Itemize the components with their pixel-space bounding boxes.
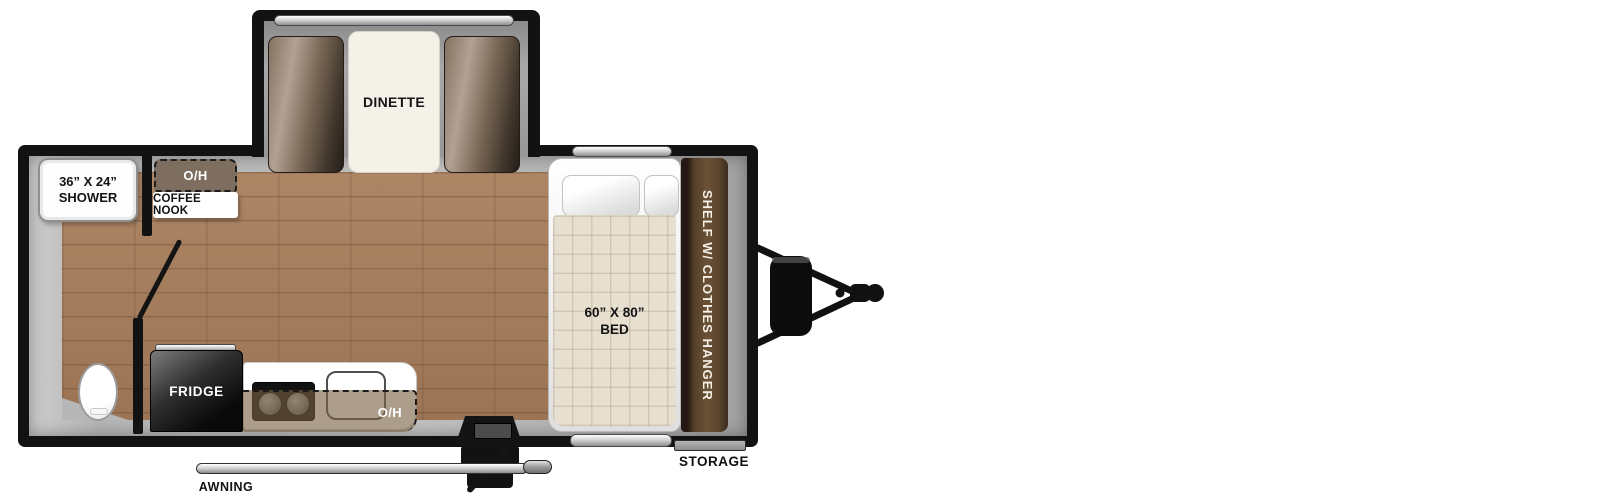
coffee-nook-label: COFFEE NOOK [153, 193, 238, 217]
floorplan-canvas: DINETTE 36” X 24” SHOWER O/H COFFEE NOOK… [0, 0, 1600, 501]
kitchen-overhead-cabinet: O/H [243, 390, 417, 432]
trailer-hitch-icon [756, 230, 886, 360]
bathroom-wall-lower [133, 318, 143, 434]
slideout-window-strip [274, 15, 514, 26]
fridge-label: FRIDGE [169, 384, 224, 399]
awning-bar-end-cap [523, 460, 552, 474]
pillow-icon [644, 175, 679, 217]
awning-bar [196, 463, 528, 474]
awning-label: AWNING [199, 480, 253, 494]
shower: 36” X 24” SHOWER [38, 158, 138, 222]
pillow-icon [562, 175, 640, 217]
dinette-bench-right [444, 36, 520, 173]
propane-tank-icon [770, 256, 812, 336]
storage-label: STORAGE [679, 454, 749, 469]
fridge: FRIDGE [150, 350, 243, 432]
bed-mattress: 60” X 80” BED [553, 215, 676, 426]
bathroom-wall-upper [142, 150, 152, 236]
coffee-nook-overhead-cabinet: O/H [154, 159, 237, 192]
kitchen-oh-label: O/H [378, 405, 402, 420]
storage-compartment-door [674, 440, 746, 451]
bed-size-label: 60” X 80” [584, 304, 644, 321]
dinette-table: DINETTE [348, 31, 440, 173]
coffee-nook-label-box: COFFEE NOOK [153, 192, 238, 218]
dinette-label: DINETTE [363, 94, 425, 110]
entry-door-threshold [474, 423, 512, 439]
shower-label: SHOWER [59, 190, 118, 206]
shelf-with-clothes-hanger: SHELF W/ CLOTHES HANGER [681, 158, 728, 432]
shelf-label: SHELF W/ CLOTHES HANGER [694, 190, 715, 401]
coffee-nook-oh-label: O/H [183, 168, 207, 183]
storage-access-door [570, 434, 672, 447]
toilet-icon [78, 363, 118, 421]
shower-size-label: 36” X 24” [59, 174, 117, 190]
bed-window-strip [572, 146, 672, 157]
bed-label: BED [600, 321, 629, 338]
dinette-bench-left [268, 36, 344, 173]
